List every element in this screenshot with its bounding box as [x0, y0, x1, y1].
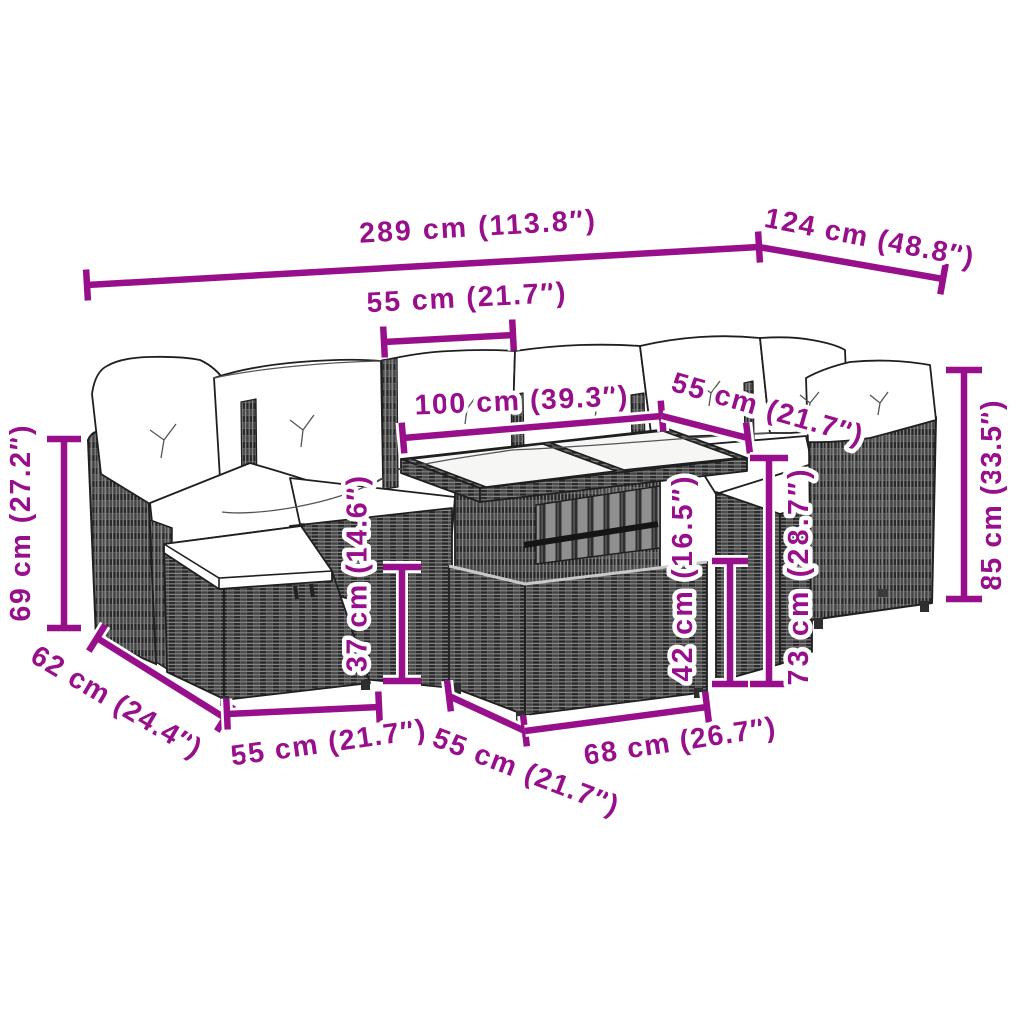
svg-text:85 cm (33.5″): 85 cm (33.5″)	[976, 401, 1008, 591]
svg-text:37 cm (14.6″): 37 cm (14.6″)	[342, 476, 374, 672]
svg-text:69 cm (27.2″): 69 cm (27.2″)	[5, 426, 37, 622]
svg-text:42 cm (16.5″): 42 cm (16.5″)	[667, 477, 699, 682]
svg-text:73 cm (28.7″): 73 cm (28.7″)	[783, 470, 815, 686]
